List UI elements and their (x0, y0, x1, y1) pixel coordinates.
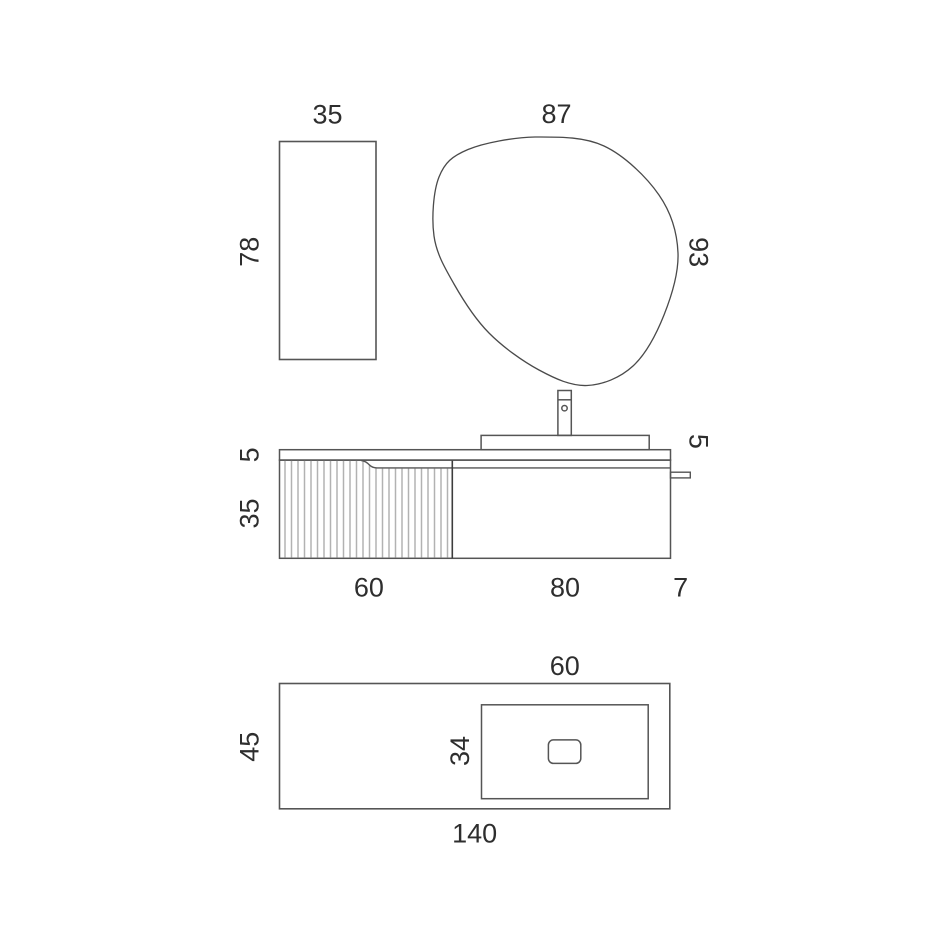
svg-text:60: 60 (354, 573, 384, 603)
svg-text:35: 35 (235, 498, 265, 528)
svg-text:78: 78 (235, 237, 265, 267)
svg-text:5: 5 (235, 447, 265, 462)
svg-text:60: 60 (550, 651, 580, 681)
svg-text:45: 45 (235, 732, 265, 762)
svg-text:80: 80 (550, 573, 580, 603)
svg-text:7: 7 (673, 573, 688, 603)
svg-text:87: 87 (541, 99, 571, 129)
svg-text:93: 93 (684, 237, 714, 267)
svg-text:5: 5 (684, 434, 714, 449)
svg-text:34: 34 (445, 736, 475, 766)
svg-text:35: 35 (312, 100, 342, 130)
svg-text:140: 140 (452, 819, 497, 849)
